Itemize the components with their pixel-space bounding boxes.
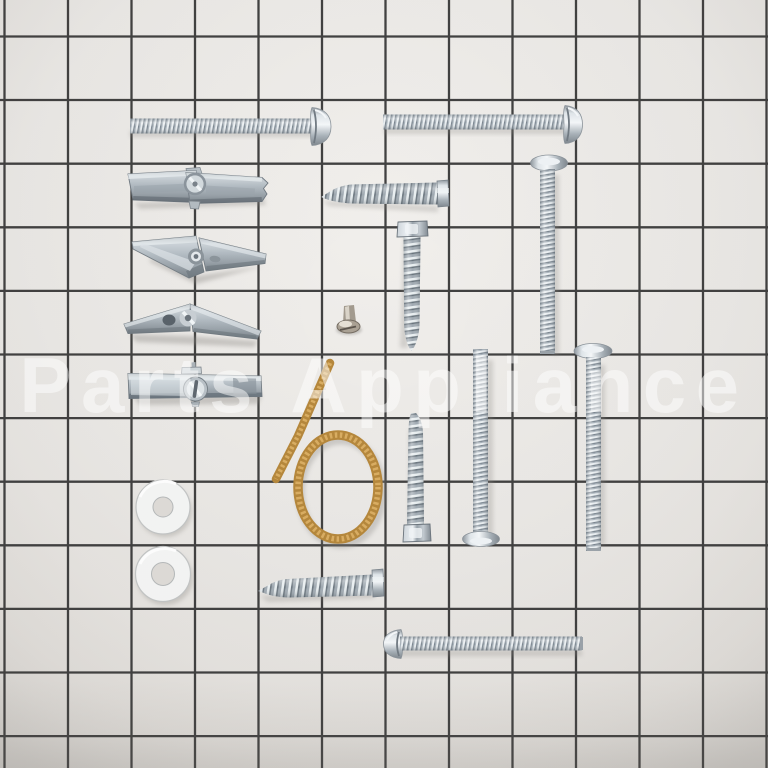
svg-text:Parts Appliance: Parts Appliance bbox=[19, 341, 748, 429]
